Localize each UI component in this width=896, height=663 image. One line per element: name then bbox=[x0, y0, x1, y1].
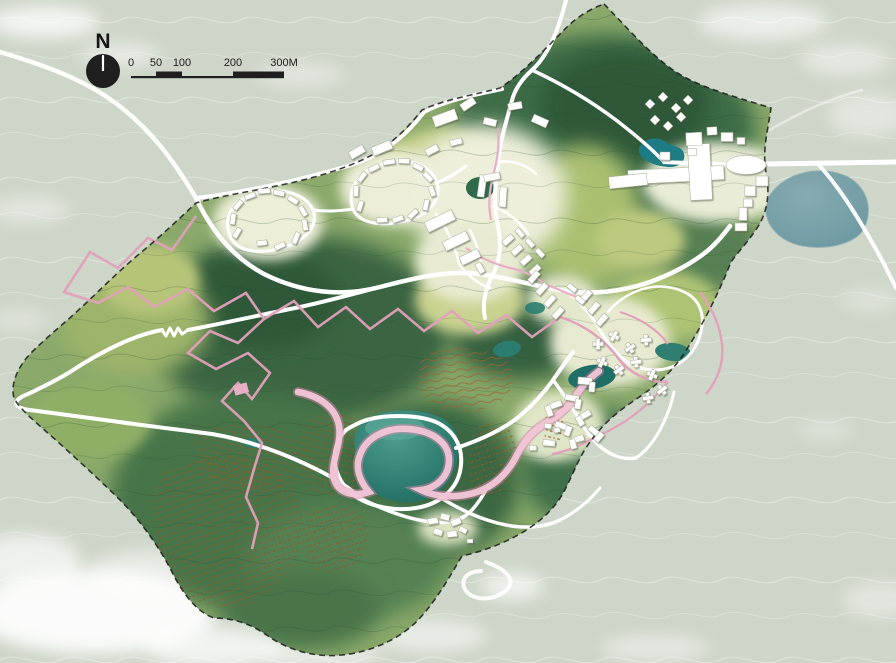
map-canvas: N 0 50 100 200 300M bbox=[0, 0, 896, 663]
scale-tick-200: 200 bbox=[224, 57, 242, 69]
scale-tick-100: 100 bbox=[173, 57, 191, 69]
scale-tick-50: 50 bbox=[150, 57, 162, 69]
building bbox=[744, 199, 753, 207]
building bbox=[258, 188, 270, 194]
scale-tick-0: 0 bbox=[128, 57, 134, 69]
building bbox=[721, 133, 733, 142]
scale-bar-segment-2 bbox=[233, 72, 284, 79]
building bbox=[589, 382, 596, 392]
building bbox=[707, 127, 717, 136]
building bbox=[688, 149, 697, 156]
building bbox=[745, 186, 756, 196]
star-villa bbox=[640, 338, 651, 343]
building bbox=[499, 187, 507, 207]
scale-bar-segment-1 bbox=[156, 72, 182, 79]
building bbox=[447, 530, 458, 537]
building bbox=[735, 223, 747, 231]
small-pond bbox=[525, 302, 545, 314]
north-label: N bbox=[95, 30, 110, 53]
building bbox=[739, 208, 747, 221]
star-villa bbox=[630, 359, 641, 364]
building bbox=[686, 132, 703, 146]
building bbox=[756, 176, 768, 186]
building bbox=[530, 446, 537, 451]
building bbox=[257, 240, 268, 246]
building bbox=[467, 539, 473, 543]
building bbox=[543, 439, 555, 446]
building bbox=[660, 152, 670, 160]
building bbox=[544, 423, 552, 429]
scale-tick-300: 300M bbox=[270, 57, 298, 69]
building bbox=[353, 185, 359, 196]
building bbox=[737, 138, 745, 145]
building bbox=[376, 217, 387, 223]
masterplan-map: N 0 50 100 200 300M bbox=[0, 0, 896, 663]
hotel-oval-driveway bbox=[726, 156, 766, 175]
star-villa bbox=[596, 339, 600, 350]
building bbox=[398, 158, 409, 164]
